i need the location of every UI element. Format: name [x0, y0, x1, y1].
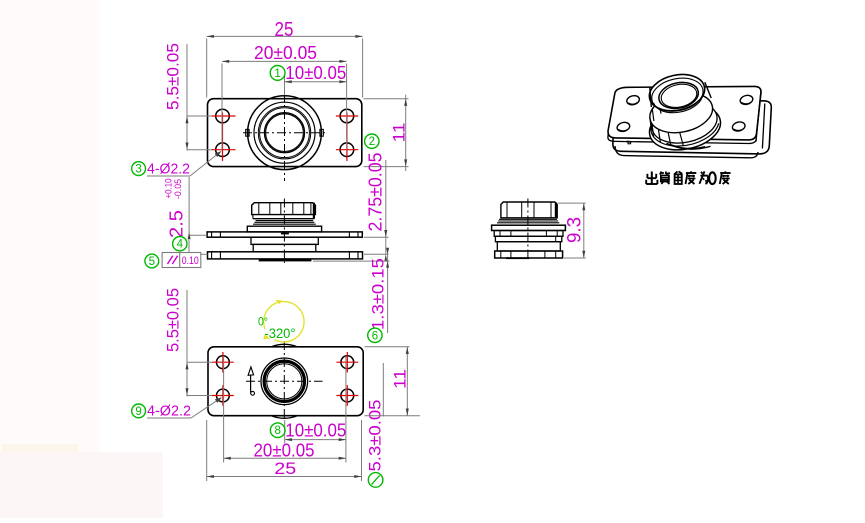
svg-text:-0.05: -0.05	[173, 179, 184, 199]
svg-text:5.5±0.05: 5.5±0.05	[164, 288, 183, 352]
svg-text:-320°: -320°	[265, 326, 296, 341]
svg-text:20±0.05: 20±0.05	[254, 43, 317, 63]
svg-text:0.10: 0.10	[182, 255, 199, 267]
svg-text:5.5±0.05: 5.5±0.05	[164, 43, 183, 110]
svg-text:11: 11	[391, 369, 410, 389]
svg-text:10±0.05: 10±0.05	[285, 421, 346, 441]
svg-text:10±0.05: 10±0.05	[285, 63, 346, 83]
svg-text:8: 8	[274, 425, 280, 437]
svg-text:5.3±0.05: 5.3±0.05	[366, 400, 385, 472]
svg-text:1: 1	[274, 68, 280, 80]
svg-text:9.3: 9.3	[565, 217, 586, 243]
svg-text:5: 5	[149, 256, 155, 268]
svg-text:3: 3	[135, 164, 141, 176]
svg-text:25: 25	[275, 19, 294, 41]
svg-text:4-Ø2.2: 4-Ø2.2	[147, 162, 190, 178]
svg-text:25: 25	[274, 459, 296, 478]
svg-text:9: 9	[135, 406, 141, 418]
svg-text:20±0.05: 20±0.05	[254, 441, 315, 461]
svg-text:1.3±0.15: 1.3±0.15	[369, 258, 388, 330]
svg-text:4-Ø2.2: 4-Ø2.2	[147, 404, 191, 420]
svg-text:6: 6	[372, 330, 378, 342]
svg-text:4: 4	[177, 239, 184, 251]
svg-text:2: 2	[369, 136, 375, 148]
svg-text:11: 11	[390, 123, 409, 143]
svg-text:2.75±0.05: 2.75±0.05	[366, 153, 386, 232]
svg-text:2.5: 2.5	[166, 210, 187, 238]
